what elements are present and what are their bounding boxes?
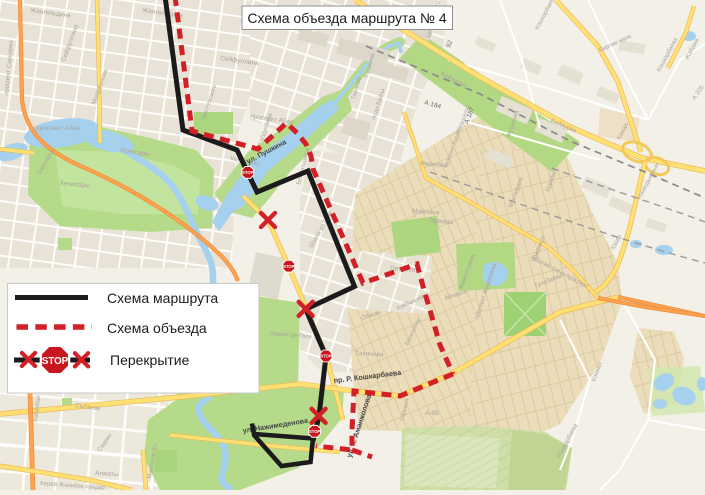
svg-text:проспект Абая: проспект Абая [36,124,80,132]
svg-text:Алматы: Алматы [95,470,119,478]
svg-text:А-98: А-98 [425,410,439,417]
svg-text:Схема объезда маршрута № 4: Схема объезда маршрута № 4 [247,10,446,26]
svg-text:Схема маршрута: Схема маршрута [107,290,218,306]
svg-text:Майлина: Майлина [412,207,440,216]
svg-text:Схема объезда: Схема объезда [107,320,207,336]
svg-text:Перекрытие: Перекрытие [110,352,190,368]
